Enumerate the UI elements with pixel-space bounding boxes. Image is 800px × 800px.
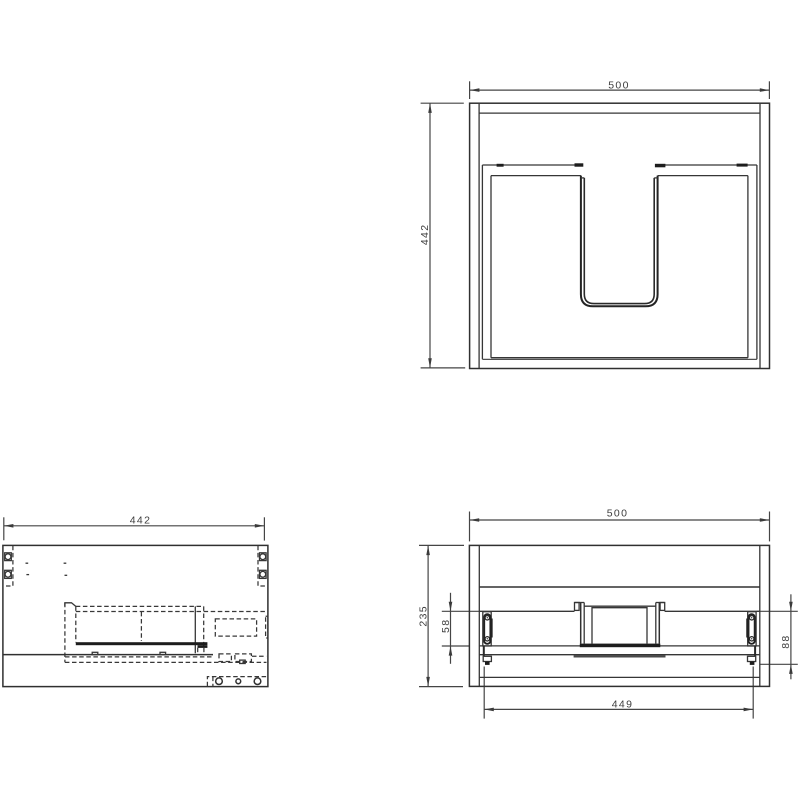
svg-text:235: 235 — [418, 605, 430, 627]
svg-text:449: 449 — [612, 698, 634, 710]
svg-text:58: 58 — [440, 619, 452, 633]
svg-text:442: 442 — [419, 224, 431, 246]
svg-text:500: 500 — [608, 80, 630, 92]
svg-text:88: 88 — [780, 634, 792, 648]
svg-text:442: 442 — [130, 514, 152, 526]
svg-text:500: 500 — [607, 508, 629, 520]
